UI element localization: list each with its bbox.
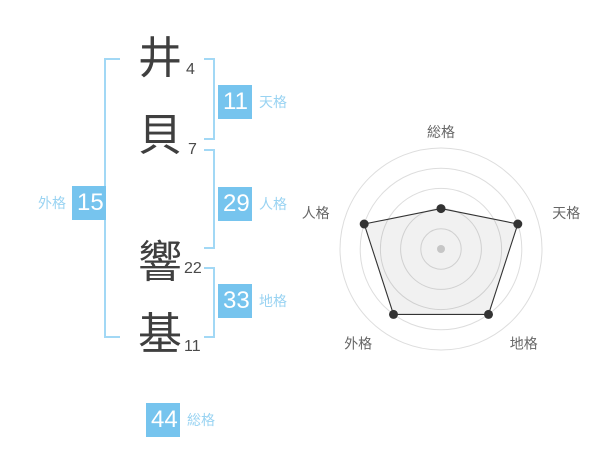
gaikaku-value-box: 15 (72, 186, 106, 220)
stroke-count-3: 22 (184, 261, 202, 277)
bracket-stub (204, 267, 215, 269)
radar-axis-label: 総格 (427, 124, 455, 140)
name-analysis-page: 井 貝 響 基 4 7 22 11 11 天格 29 人格 33 地格 外格 1… (0, 0, 600, 470)
chikaku-value-box: 33 (218, 284, 252, 318)
bracket-stub (204, 247, 215, 249)
radar-center-dot (437, 245, 445, 253)
bracket-stub (204, 58, 215, 60)
soukaku-value-box: 44 (146, 403, 180, 437)
bracket-stub (204, 138, 215, 140)
bracket-line (213, 149, 215, 249)
radar-data-point (437, 204, 446, 213)
radar-data-point (389, 310, 398, 319)
jinkaku-value-box: 29 (218, 187, 252, 221)
radar-axis-label: 外格 (344, 336, 372, 352)
tenkaku-label: 天格 (259, 95, 287, 109)
bracket-line (213, 58, 215, 140)
name-char-2: 貝 (132, 114, 188, 158)
bracket-stub (104, 58, 120, 60)
bracket-stub (204, 336, 215, 338)
radar-axis-label: 地格 (510, 336, 538, 352)
bracket-stub (204, 149, 215, 151)
stroke-count-1: 4 (186, 62, 195, 78)
name-char-1: 井 (132, 37, 188, 81)
stroke-count-2: 7 (188, 142, 197, 158)
radar-data-point (513, 220, 522, 229)
radar-axis-label: 天格 (552, 205, 580, 221)
bracket-line (213, 267, 215, 338)
radar-axis-label: 人格 (302, 205, 330, 221)
stroke-count-4: 11 (184, 339, 201, 355)
chikaku-label: 地格 (259, 294, 287, 308)
jinkaku-label: 人格 (259, 197, 287, 211)
bracket-stub (104, 336, 120, 338)
radar-data-point (360, 220, 369, 229)
name-char-3: 響 (132, 241, 188, 285)
soukaku-label: 総格 (187, 413, 215, 427)
gaikaku-label: 外格 (28, 196, 66, 210)
radar-data-point (484, 310, 493, 319)
radar-data-polygon (364, 209, 518, 315)
name-char-4: 基 (132, 313, 188, 357)
radar-chart: 総格天格地格外格人格 (285, 95, 597, 395)
tenkaku-value-box: 11 (218, 85, 252, 119)
